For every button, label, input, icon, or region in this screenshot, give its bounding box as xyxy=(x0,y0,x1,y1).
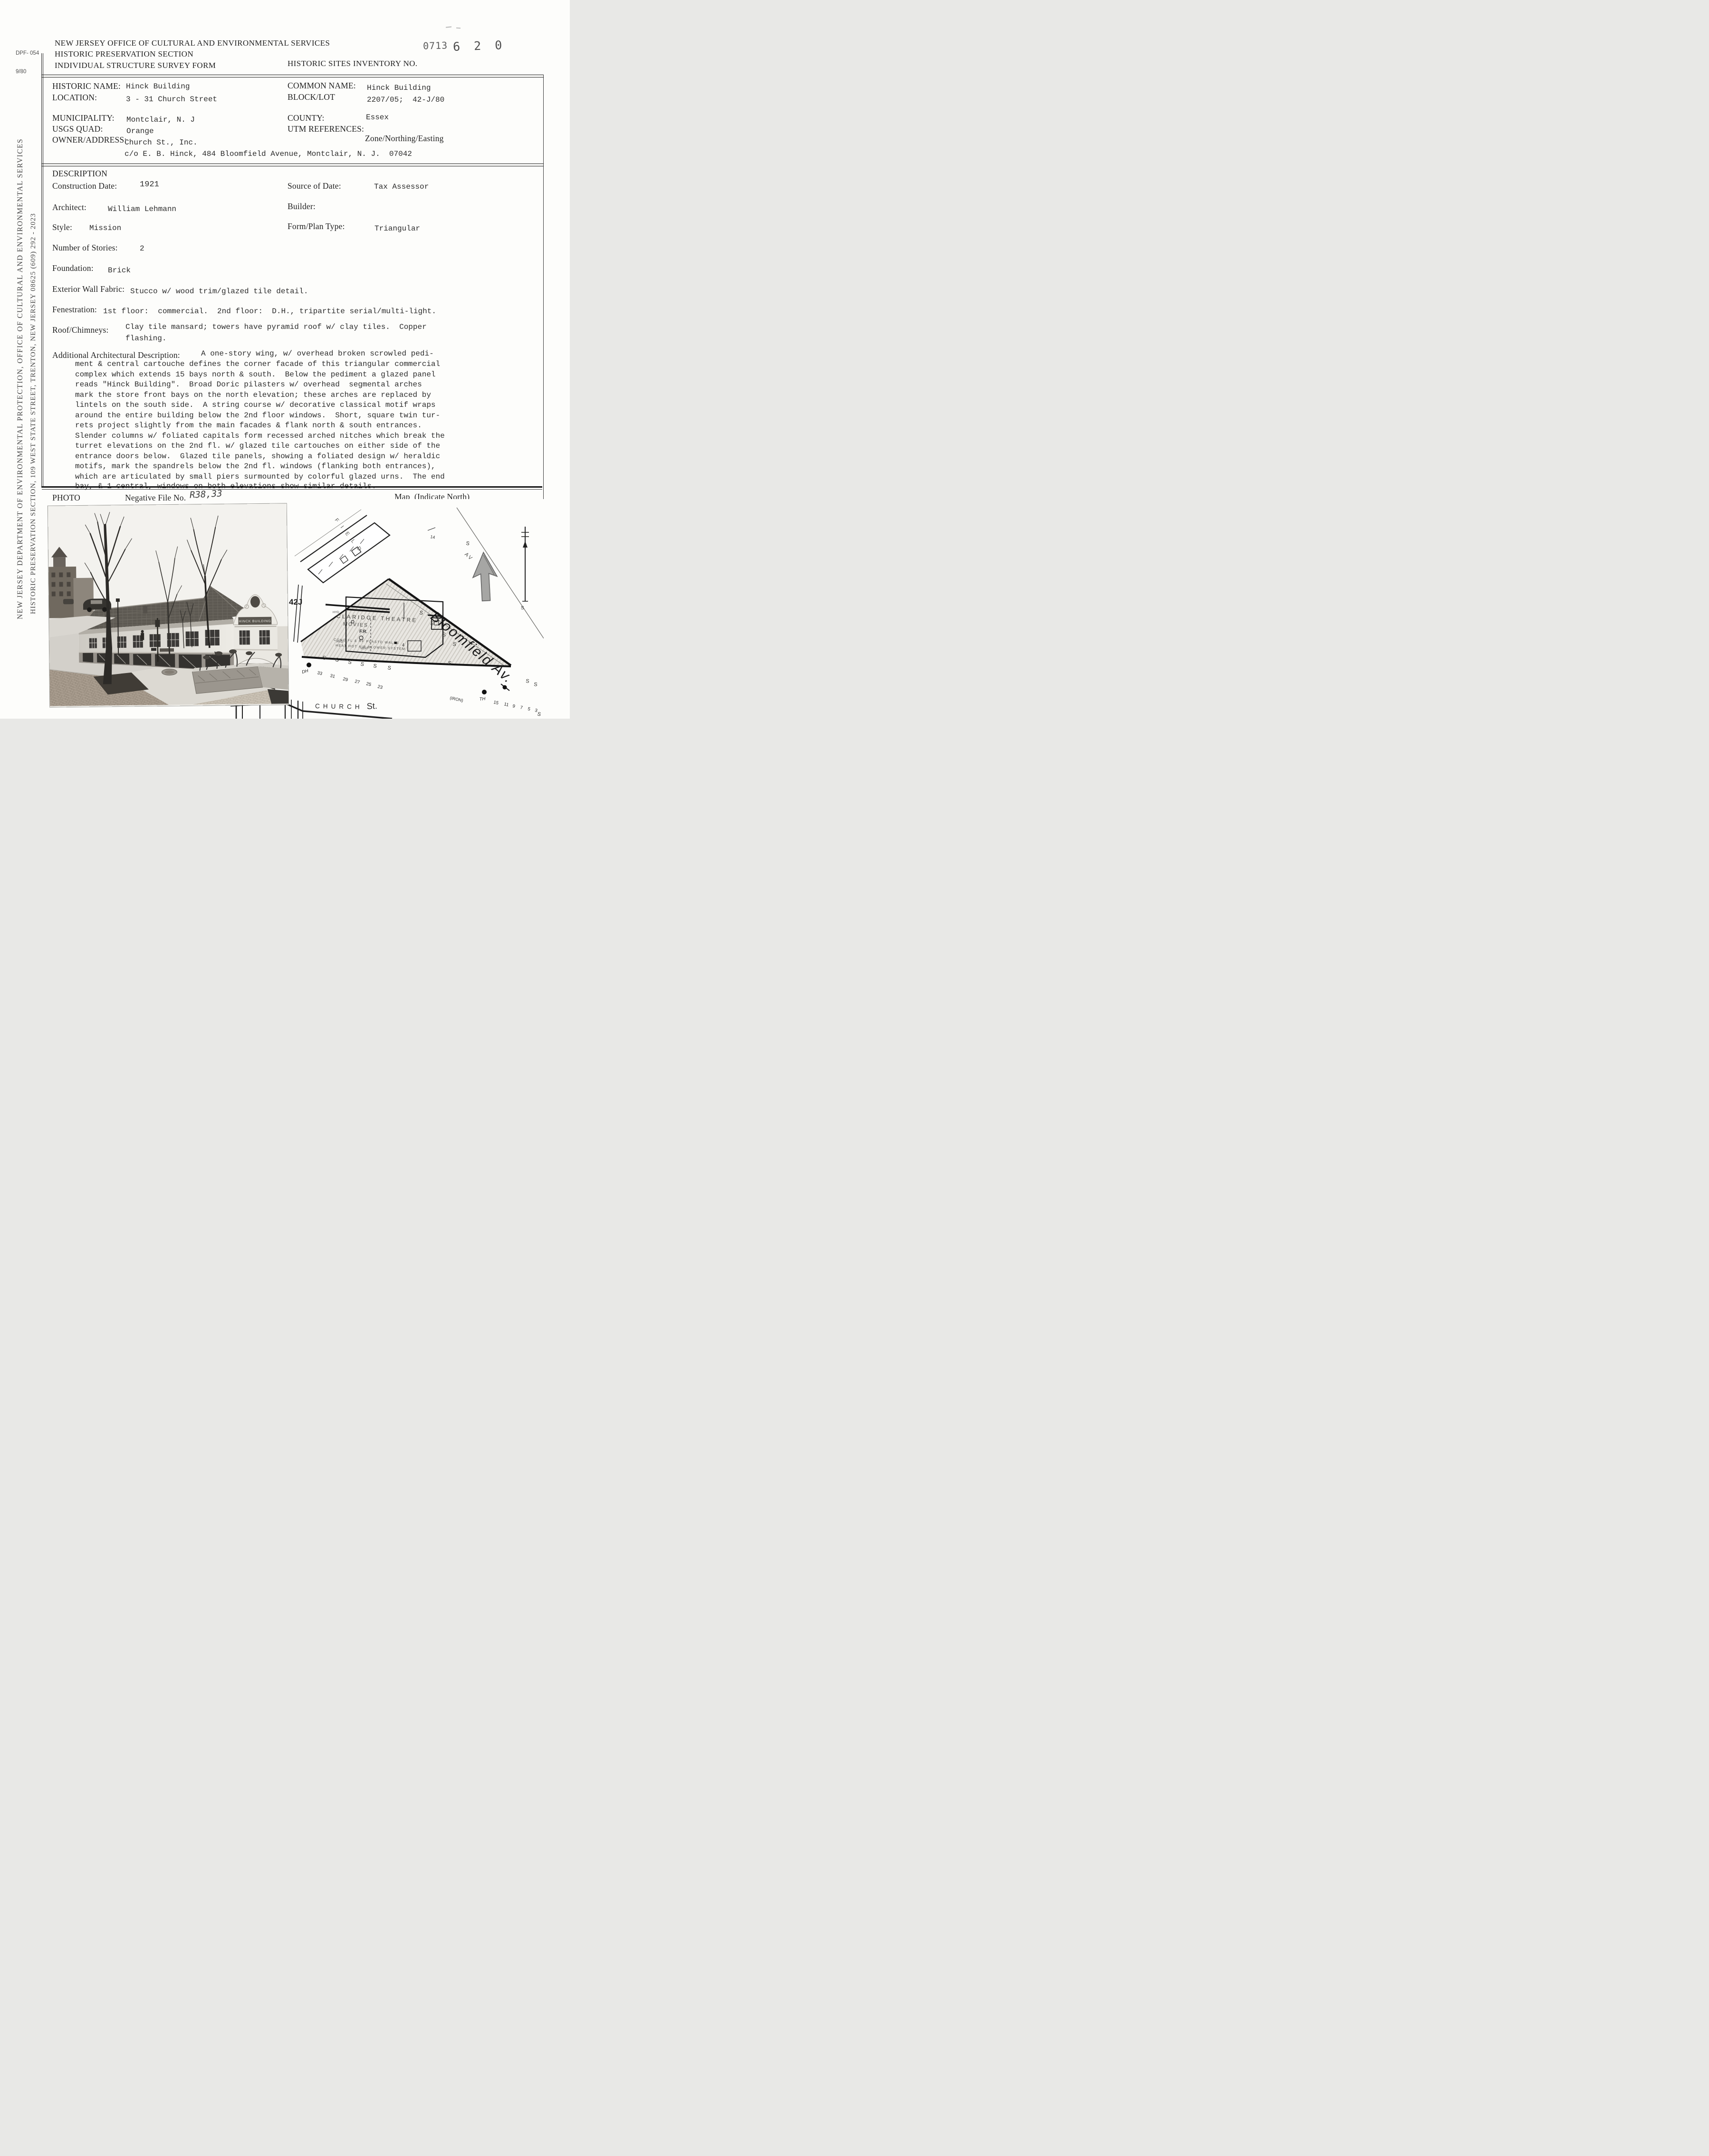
svg-text:15: 15 xyxy=(493,700,499,706)
photo-label: PHOTO xyxy=(52,493,80,503)
additional-description-line: ment & central cartouche defines the cor… xyxy=(75,360,440,368)
svg-text:S: S xyxy=(526,678,530,684)
additional-description-line: A one-story wing, w/ overhead broken scr… xyxy=(201,349,434,358)
agency-line-1: NEW JERSEY OFFICE OF CULTURAL AND ENVIRO… xyxy=(55,38,330,48)
sidebar-address-line: HISTORIC PRESERVATION SECTION, 109 WEST … xyxy=(29,213,38,614)
construction-date-label: Construction Date: xyxy=(52,181,117,191)
number-of-stories-label: Number of Stories: xyxy=(52,243,118,253)
roof-chimneys-value-line1: Clay tile mansard; towers have pyramid r… xyxy=(125,323,427,331)
photo-pediment-sign: HINCK BUILDING xyxy=(239,620,271,624)
map-theatre-number: 4 xyxy=(402,643,404,647)
map-hyd-note: HYD xyxy=(333,611,339,614)
additional-description-label: Additional Architectural Description: xyxy=(52,350,180,360)
location-label: LOCATION: xyxy=(52,93,97,103)
utm-zone-sub-label: Zone/Northing/Easting xyxy=(365,134,444,144)
usgs-quad-value: Orange xyxy=(126,127,154,135)
additional-description-line: mark the store front bays on the north e… xyxy=(75,391,431,399)
additional-description-line: motifs, mark the spandrels below the 2nd… xyxy=(75,462,436,471)
map-hyd-note: HYD xyxy=(336,640,343,644)
additional-description-line: lintels on the south side. A string cour… xyxy=(75,401,436,409)
block-lot-value: 2207/05; 42-J/80 xyxy=(367,96,444,104)
exterior-wall-fabric-label: Exterior Wall Fabric: xyxy=(52,284,125,294)
inventory-stamp-prefix: 0713 xyxy=(423,39,448,51)
additional-description-line: reads "Hinck Building". Broad Doric pila… xyxy=(75,380,422,389)
historic-name-label: HISTORIC NAME: xyxy=(52,81,121,91)
usgs-quad-label: USGS QUAD: xyxy=(52,124,103,134)
photo-pedestrian xyxy=(141,630,144,640)
block-lot-label: BLOCK/LOT xyxy=(288,92,335,102)
additional-description-line-struck: bay, & 1 central, windows on both elevat… xyxy=(75,482,376,491)
county-value: Essex xyxy=(366,113,389,122)
additional-description-line: entrance doors below. Glazed tile panels… xyxy=(75,452,440,461)
style-label: Style: xyxy=(52,222,72,232)
exterior-wall-fabric-value: Stucco w/ wood trim/glazed tile detail. xyxy=(130,287,308,296)
inventory-stamp-number: 6 2 0 xyxy=(453,38,506,54)
agency-line-3: INDIVIDUAL STRUCTURE SURVEY FORM xyxy=(55,61,216,70)
municipality-value: Montclair, N. J xyxy=(126,115,195,124)
map-hydrant-dot xyxy=(307,663,311,667)
map-block-label: 42J xyxy=(289,597,302,606)
map-hydrant-th: TH xyxy=(479,696,486,702)
photo-chimney xyxy=(143,606,147,613)
additional-description-line: turret elevations on the 2nd fl. w/ glaz… xyxy=(75,442,440,450)
additional-description-line: around the entire building below the 2nd… xyxy=(75,411,440,420)
svg-text:S: S xyxy=(534,682,538,688)
identification-rule xyxy=(42,164,544,166)
map-hydrant-dot xyxy=(482,690,487,694)
architect-value: William Lehmann xyxy=(108,205,176,213)
agency-line-2: HISTORIC PRESERVATION SECTION xyxy=(55,49,193,59)
location-value: 3 - 31 Church Street xyxy=(126,95,217,104)
survey-form-page: NEW JERSEY DEPARTMENT OF ENVIRONMENTAL P… xyxy=(0,0,570,719)
fenestration-value: 1st floor: commercial. 2nd floor: D.H., … xyxy=(103,307,436,316)
form-date: 9/80 xyxy=(16,69,39,75)
description-title: DESCRIPTION xyxy=(52,169,107,179)
source-of-date-label: Source of Date: xyxy=(288,181,341,191)
left-border xyxy=(41,53,43,488)
form-plan-type-value: Triangular xyxy=(374,224,420,233)
owner-address-label: OWNER/ADDRESS: xyxy=(52,135,126,145)
roof-chimneys-label: Roof/Chimneys: xyxy=(52,325,109,335)
inventory-number-label: HISTORIC SITES INVENTORY NO. xyxy=(288,59,417,68)
roof-chimneys-value-line2: flashing. xyxy=(125,334,166,343)
additional-description-line: rets project slightly from the main faca… xyxy=(75,421,422,430)
form-number-block: DPF- 054 9/80 xyxy=(16,38,39,87)
additional-description-line: which are articulated by small piers sur… xyxy=(75,472,445,481)
foundation-value: Brick xyxy=(108,266,131,275)
fenestration-label: Fenestration: xyxy=(52,305,97,315)
negative-file-number: R38,33 xyxy=(189,488,222,500)
additional-description-line: Slender columns w/ foliated capitals for… xyxy=(75,432,445,440)
additional-description-line: complex which extends 15 bays north & so… xyxy=(75,370,436,379)
style-value: Mission xyxy=(89,224,121,232)
form-plan-type-label: Form/Plan Type: xyxy=(288,221,345,231)
sidebar-agency-line: NEW JERSEY DEPARTMENT OF ENVIRONMENTAL P… xyxy=(16,138,25,619)
utm-references-label: UTM REFERENCES: xyxy=(288,124,364,134)
number-of-stories-value: 2 xyxy=(140,244,144,253)
owner-address-value-line2: c/o E. B. Hinck, 484 Bloomfield Avenue, … xyxy=(125,150,412,158)
stray-mark xyxy=(446,26,451,28)
common-name-label: COMMON NAME: xyxy=(288,81,356,91)
construction-date-value: 1921 xyxy=(140,180,159,189)
map-church-st: St. xyxy=(366,701,377,711)
builder-label: Builder: xyxy=(288,202,316,212)
architect-label: Architect: xyxy=(52,202,86,212)
map-theatre-fr: F.R. xyxy=(359,629,367,635)
owner-address-value: Church St., Inc. xyxy=(125,138,198,147)
source-of-date-value: Tax Assessor xyxy=(374,183,429,191)
municipality-label: MUNICIPALITY: xyxy=(52,113,115,123)
map-s-mark: S xyxy=(521,606,524,611)
map-church-label: CHURCH xyxy=(315,703,363,711)
map-mark-14: 14 xyxy=(430,534,436,540)
photo-distant-car xyxy=(63,599,74,604)
negative-file-label: Negative File No. xyxy=(125,493,186,503)
stray-mark xyxy=(456,28,461,29)
header-rule xyxy=(42,75,544,77)
form-number: DPF- 054 xyxy=(16,50,39,57)
common-name-value: Hinck Building xyxy=(367,84,431,92)
building-photo: HINCK BUILDING JOHN ROBERT POWERS SCHOOL… xyxy=(48,503,288,707)
map-vent-note: VENT xyxy=(360,647,368,650)
foundation-label: Foundation: xyxy=(52,263,94,273)
county-label: COUNTY: xyxy=(288,113,325,123)
historic-name-value: Hinck Building xyxy=(126,82,190,91)
